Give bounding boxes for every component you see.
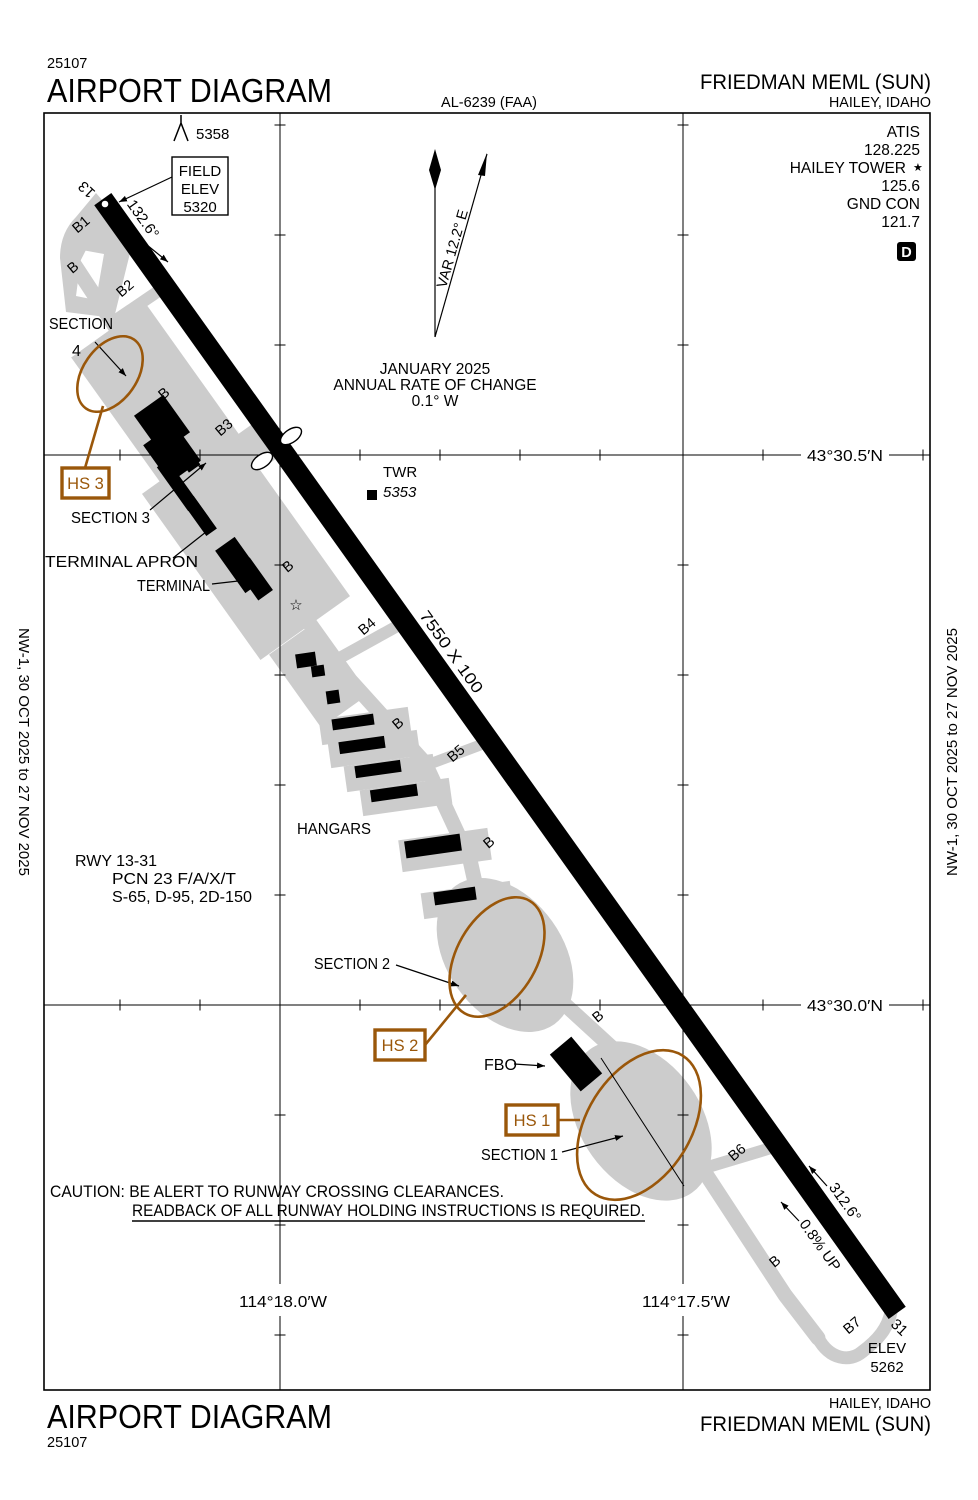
building [295, 652, 317, 669]
page-title-top: AIRPORT DIAGRAM [47, 72, 332, 109]
hotspot-hs2-label: HS 2 [382, 1037, 419, 1055]
obstruction-icon [174, 115, 188, 141]
chart-code-bottom: 25107 [47, 1435, 87, 1451]
hotspot-hs3-label: HS 3 [67, 475, 104, 493]
field-elev-line2: ELEV [181, 181, 219, 198]
building [311, 665, 325, 678]
runway-13-threshold-dot [102, 201, 109, 208]
hotspot-hs2-leader [425, 995, 466, 1045]
hotspot-hs1-label: HS 1 [514, 1112, 551, 1130]
tower-star-icon: ★ [913, 162, 923, 174]
chart-code-top: 25107 [47, 56, 87, 72]
hotspot-hs3-leader [85, 406, 103, 468]
lat-north-label: 43°30.5′N [807, 448, 883, 465]
city-bottom: HAILEY, IDAHO [829, 1395, 931, 1412]
field-elev-arrow [119, 177, 172, 202]
runway-31-elev-value: 5262 [870, 1359, 903, 1376]
al-number: AL-6239 (FAA) [441, 95, 537, 111]
north-indicator: VAR 12.2° E JANUARY 2025 ANNUAL RATE OF … [333, 149, 536, 410]
variation-label: VAR 12.2° E [434, 208, 472, 290]
runway-data-line2: PCN 23 F/A/X/T [112, 871, 237, 888]
runway-data-line3: S-65, D-95, 2D-150 [112, 889, 252, 906]
caution-line1: CAUTION: BE ALERT TO RUNWAY CROSSING CLE… [50, 1182, 504, 1201]
airport-diagram-page: ☆ 43°30.5′N 43°30.0′N 114°18.0′W 114°17.… [0, 0, 978, 1500]
section1-label: SECTION 1 [481, 1147, 558, 1164]
terminal-label: TERMINAL [137, 578, 210, 595]
airport-name-bottom: FRIEDMAN MEML (SUN) [700, 1413, 931, 1436]
runway-data-line1: RWY 13-31 [75, 853, 157, 870]
caution-line2: READBACK OF ALL RUNWAY HOLDING INSTRUCTI… [132, 1201, 645, 1220]
ground-freq: 121.7 [881, 214, 920, 231]
lat-south-label: 43°30.0′N [807, 998, 883, 1015]
section3-label: SECTION 3 [71, 510, 150, 527]
tower-label: TWR [383, 464, 417, 481]
fbo-label: FBO [484, 1057, 517, 1074]
ground-label: GND CON [847, 196, 920, 213]
building [326, 690, 341, 705]
obstruction-elev-value: 5358 [196, 126, 229, 143]
comm-frequencies: ATIS 128.225 HAILEY TOWER ★ 125.6 GND CO… [790, 124, 923, 261]
effective-dates-left: NW-1, 30 OCT 2025 to 27 NOV 2025 [15, 628, 32, 876]
tower-elev: 5353 [383, 484, 417, 501]
header: 25107 AIRPORT DIAGRAM AL-6239 (FAA) FRIE… [47, 56, 931, 111]
lon-east-label: 114°17.5′W [642, 1294, 730, 1311]
taxiway-label-b7: B7 [840, 1314, 864, 1338]
section2-label: SECTION 2 [314, 956, 390, 973]
true-north-arrowhead-icon [429, 149, 441, 190]
footer: AIRPORT DIAGRAM 25107 HAILEY, IDAHO FRIE… [47, 1395, 931, 1451]
section4-label-line2: 4 [72, 343, 81, 360]
runway-gradient-arrow [781, 1202, 799, 1221]
caution-note: CAUTION: BE ALERT TO RUNWAY CROSSING CLE… [50, 1182, 645, 1221]
data-comm-d: D [901, 245, 911, 261]
variation-date: JANUARY 2025 [380, 361, 491, 378]
field-elev-line1: FIELD [179, 163, 222, 180]
city-top: HAILEY, IDAHO [829, 94, 931, 111]
tower-site: TWR 5353 [383, 464, 417, 501]
field-elev-value: 5320 [183, 199, 216, 216]
fbo-arrow [514, 1064, 545, 1066]
atis-freq: 128.225 [864, 142, 920, 159]
airport-name-top: FRIEDMAN MEML (SUN) [700, 71, 931, 94]
lon-west-label: 114°18.0′W [239, 1294, 327, 1311]
magnetic-north-arrowhead-icon [478, 153, 487, 176]
tower-building [367, 490, 377, 500]
effective-dates-right: NW-1, 30 OCT 2025 to 27 NOV 2025 [944, 628, 961, 876]
star-icon: ☆ [289, 597, 302, 614]
rate-of-change-value: 0.1° W [412, 393, 459, 410]
airport-diagram-canvas: ☆ 43°30.5′N 43°30.0′N 114°18.0′W 114°17.… [0, 0, 978, 1500]
runway-31-elev-label: ELEV [868, 1340, 906, 1357]
rate-of-change-label: ANNUAL RATE OF CHANGE [333, 377, 536, 394]
page-title-bottom: AIRPORT DIAGRAM [47, 1398, 332, 1435]
tower-freq: 125.6 [881, 178, 920, 195]
section4-label-line1: SECTION [49, 316, 113, 333]
tower-freq-label: HAILEY TOWER [790, 160, 906, 177]
hangars-label: HANGARS [297, 821, 371, 838]
atis-label: ATIS [887, 124, 920, 141]
